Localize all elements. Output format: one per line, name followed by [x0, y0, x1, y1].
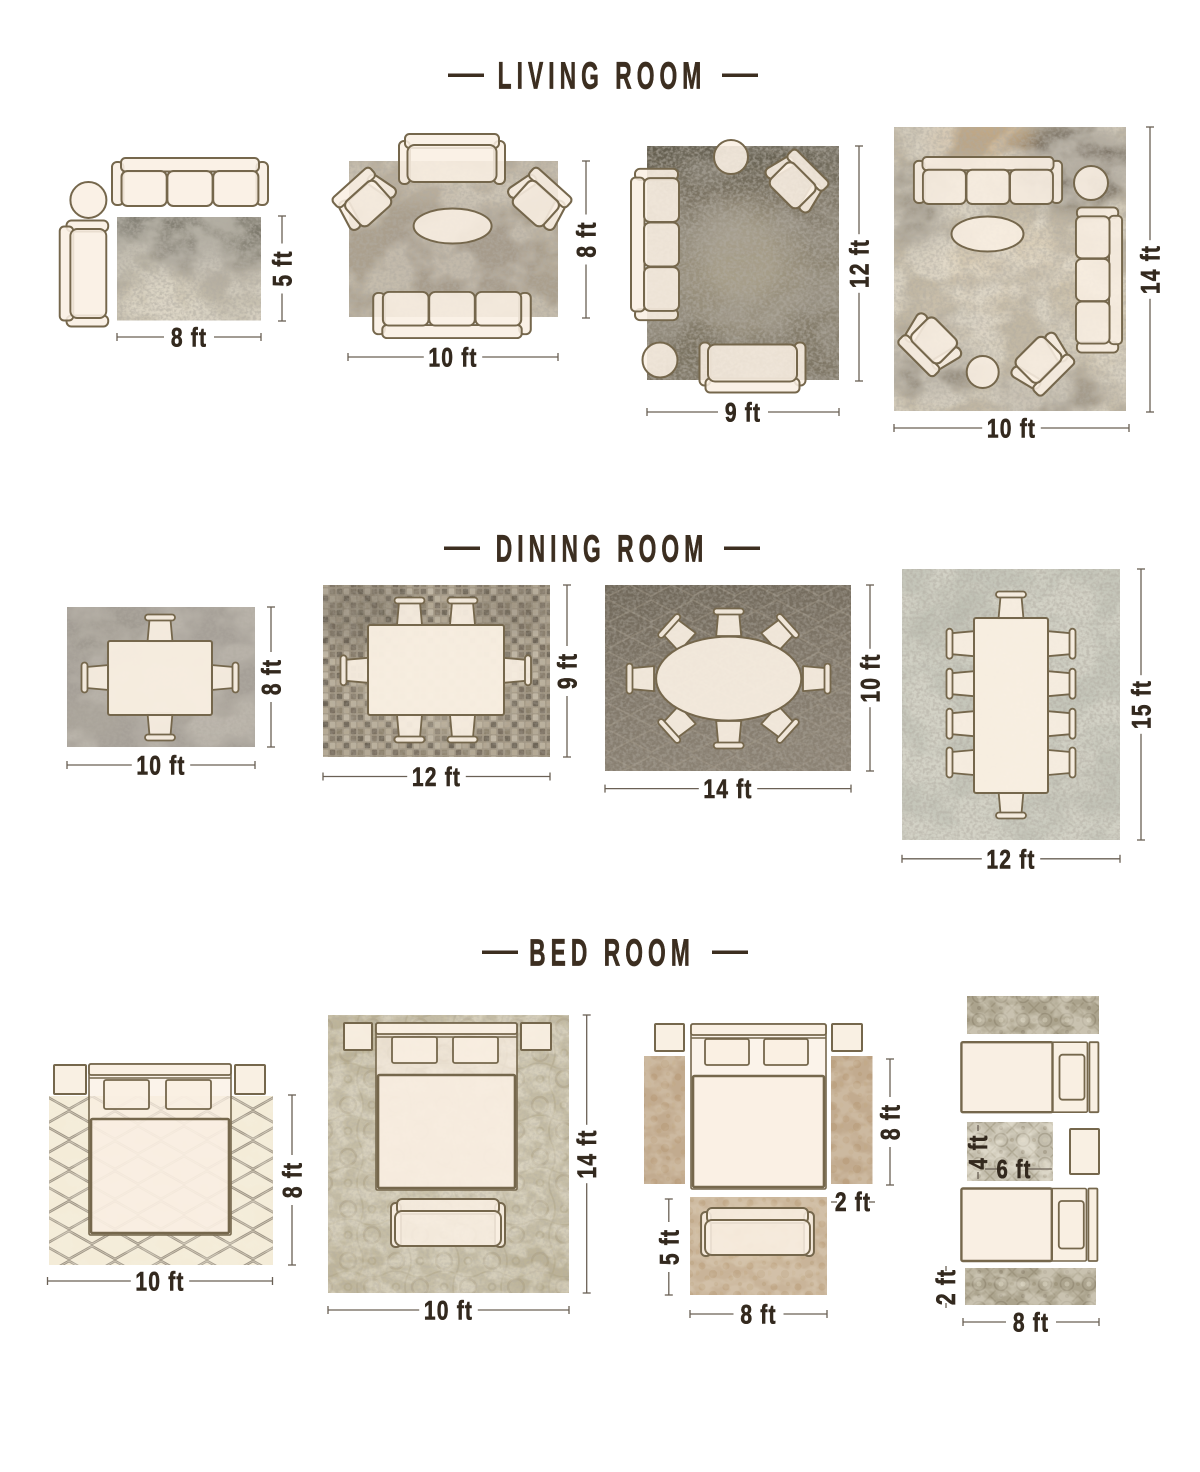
svg-text:8 ft: 8 ft: [572, 221, 602, 257]
svg-text:8 ft: 8 ft: [278, 1162, 308, 1198]
svg-text:LIVING ROOM: LIVING ROOM: [498, 55, 707, 97]
svg-text:2 ft: 2 ft: [932, 1269, 962, 1305]
svg-text:10 ft: 10 ft: [424, 1296, 473, 1326]
svg-text:5 ft: 5 ft: [655, 1229, 685, 1265]
svg-text:10 ft: 10 ft: [987, 414, 1036, 444]
svg-text:DINING ROOM: DINING ROOM: [496, 528, 708, 570]
svg-text:8 ft: 8 ft: [1013, 1308, 1049, 1338]
svg-text:8 ft: 8 ft: [171, 323, 207, 353]
svg-text:12 ft: 12 ft: [412, 763, 461, 793]
svg-text:2 ft: 2 ft: [835, 1188, 871, 1218]
svg-text:10 ft: 10 ft: [135, 1267, 184, 1297]
svg-text:15 ft: 15 ft: [1127, 680, 1157, 729]
svg-text:10 ft: 10 ft: [856, 653, 886, 702]
svg-text:14 ft: 14 ft: [573, 1129, 603, 1178]
svg-text:9 ft: 9 ft: [725, 398, 761, 428]
svg-text:8 ft: 8 ft: [740, 1300, 776, 1330]
svg-text:14 ft: 14 ft: [1136, 245, 1166, 294]
svg-text:4 ft: 4 ft: [964, 1134, 993, 1169]
svg-text:12 ft: 12 ft: [845, 239, 875, 288]
svg-text:10 ft: 10 ft: [428, 343, 477, 373]
svg-text:6 ft: 6 ft: [996, 1155, 1031, 1184]
svg-text:BED ROOM: BED ROOM: [529, 932, 695, 974]
svg-text:14 ft: 14 ft: [703, 775, 752, 805]
svg-text:8 ft: 8 ft: [876, 1104, 906, 1140]
svg-text:8 ft: 8 ft: [257, 659, 287, 695]
svg-text:9 ft: 9 ft: [553, 653, 583, 689]
svg-text:10 ft: 10 ft: [136, 751, 185, 781]
svg-text:12 ft: 12 ft: [986, 845, 1035, 875]
svg-text:5 ft: 5 ft: [268, 250, 298, 286]
